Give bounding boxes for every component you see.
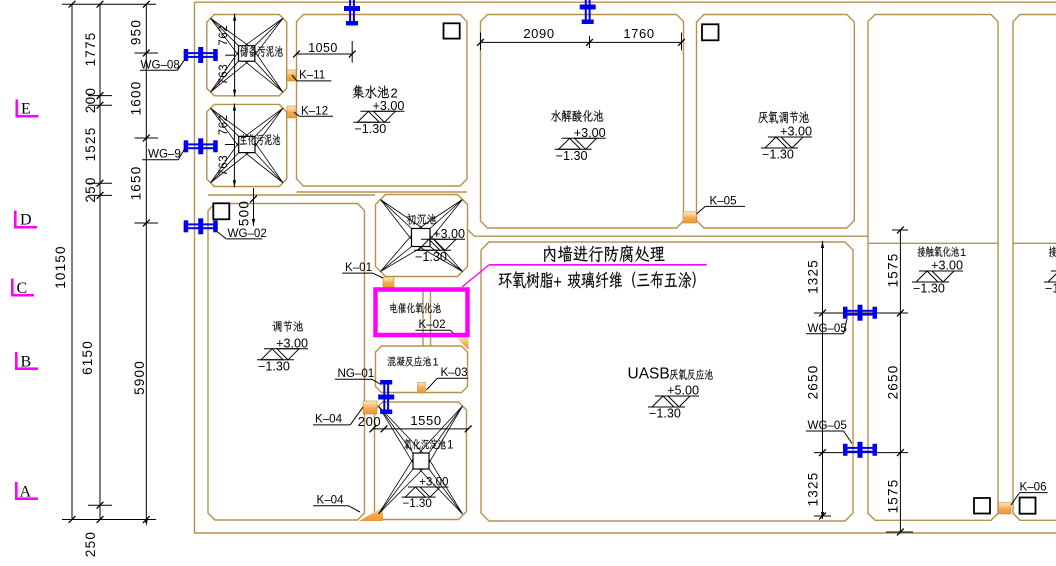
svg-text:+5.00: +5.00 (667, 384, 699, 398)
svg-text:5900: 5900 (132, 360, 147, 395)
svg-text:K–02: K–02 (419, 318, 446, 331)
svg-text:WG–05: WG–05 (808, 322, 847, 335)
svg-text:1: 1 (960, 247, 966, 259)
svg-text:B: B (21, 354, 32, 371)
svg-text:D: D (20, 212, 32, 229)
svg-text:−1.30: −1.30 (1045, 282, 1056, 296)
svg-text:E: E (21, 101, 31, 118)
svg-text:K–05: K–05 (710, 195, 737, 208)
svg-text:1: 1 (433, 357, 439, 369)
svg-text:−1.30: −1.30 (556, 149, 588, 163)
svg-text:10150: 10150 (53, 245, 68, 289)
svg-text:500: 500 (237, 200, 252, 226)
svg-text:1575: 1575 (886, 253, 901, 288)
svg-text:WG–05: WG–05 (808, 419, 847, 432)
svg-text:762: 762 (218, 25, 230, 46)
svg-text:K–03: K–03 (441, 366, 468, 379)
svg-text:2650: 2650 (886, 365, 901, 400)
svg-text:K–12: K–12 (301, 104, 328, 117)
svg-text:1775: 1775 (83, 32, 98, 67)
svg-text:1760: 1760 (623, 26, 654, 41)
svg-text:1600: 1600 (129, 81, 144, 116)
svg-text:−1.30: −1.30 (415, 250, 447, 264)
svg-text:762: 762 (218, 114, 230, 135)
svg-text:A: A (20, 484, 32, 501)
svg-text:−1.30: −1.30 (649, 407, 681, 421)
svg-text:950: 950 (129, 19, 144, 45)
svg-text:+3.00: +3.00 (574, 126, 606, 140)
svg-text:+3.00: +3.00 (780, 125, 812, 139)
svg-text:−1.30: −1.30 (354, 122, 386, 136)
svg-text:−1.30: −1.30 (258, 359, 290, 373)
svg-text:1325: 1325 (806, 472, 821, 507)
svg-text:K–04: K–04 (315, 413, 343, 426)
svg-text:UASB: UASB (628, 366, 670, 383)
svg-text:250: 250 (83, 176, 98, 202)
svg-text:−1.30: −1.30 (402, 498, 431, 510)
svg-text:−1.30: −1.30 (913, 282, 945, 296)
svg-text:2090: 2090 (523, 26, 554, 41)
svg-text:6150: 6150 (80, 340, 95, 375)
svg-text:+3.00: +3.00 (276, 336, 308, 350)
svg-text:K–11: K–11 (299, 69, 325, 82)
svg-text:1650: 1650 (129, 166, 144, 201)
svg-text:K–06: K–06 (1020, 481, 1047, 494)
svg-text:WG–02: WG–02 (228, 227, 267, 240)
svg-text:C: C (17, 280, 28, 297)
svg-text:K–04: K–04 (317, 494, 345, 507)
svg-text:+3.00: +3.00 (433, 227, 465, 241)
svg-text:763: 763 (218, 64, 230, 85)
svg-text:WG–9: WG–9 (148, 148, 181, 161)
svg-text:1325: 1325 (806, 259, 821, 294)
svg-text:200: 200 (358, 414, 382, 429)
svg-text:NG–01: NG–01 (338, 367, 375, 380)
svg-text:1050: 1050 (308, 41, 337, 55)
svg-text:2650: 2650 (806, 365, 821, 400)
svg-text:1550: 1550 (410, 413, 441, 428)
svg-text:200: 200 (83, 87, 98, 113)
svg-text:−1.30: −1.30 (762, 148, 794, 162)
svg-text:WG–08: WG–08 (141, 58, 180, 71)
svg-text:+3.00: +3.00 (931, 259, 963, 273)
svg-text:763: 763 (218, 155, 230, 176)
svg-text:1575: 1575 (886, 479, 901, 514)
svg-text:+3.00: +3.00 (419, 477, 448, 489)
svg-text:+3.00: +3.00 (373, 99, 405, 113)
svg-text:K–01: K–01 (345, 261, 372, 274)
svg-text:1: 1 (447, 440, 453, 452)
svg-text:1525: 1525 (83, 127, 98, 162)
svg-text:250: 250 (83, 531, 98, 557)
